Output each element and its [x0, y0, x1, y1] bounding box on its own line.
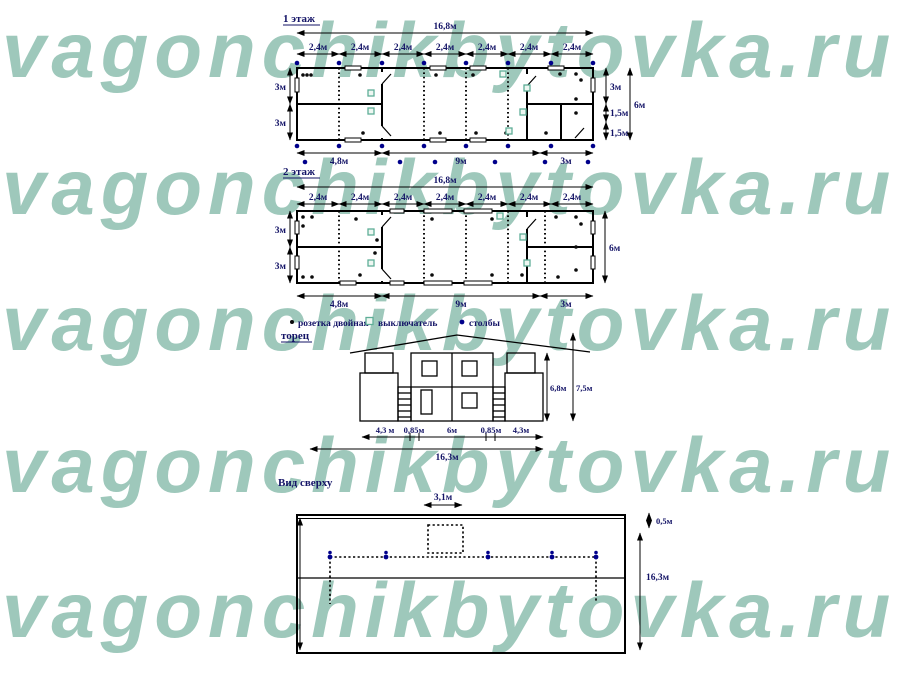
floor2-switches [368, 213, 530, 266]
floor2-title: 2 этаж [283, 166, 315, 178]
legend-posts-label: столбы [469, 318, 500, 329]
dim-label: 2,4м [394, 43, 413, 53]
socket-icon [290, 320, 294, 324]
dim-label: 3м [560, 157, 572, 167]
window [462, 361, 477, 376]
dim-label: 2,4м [563, 43, 582, 53]
floor1-bottom-dims: 4,8м 9м 3м [297, 153, 593, 167]
floor2-plan [295, 209, 595, 285]
window [462, 393, 477, 408]
dim-label: 2,4м [563, 193, 582, 203]
topview-outline [297, 515, 625, 653]
dim-label: 7,5м [576, 383, 593, 393]
dim-label: 9м [455, 300, 467, 310]
dim-label: 2,4м [351, 193, 370, 203]
floor2-bottom-dims: 4,8м 9м 3м [297, 296, 593, 310]
dim-label: 16,8м [433, 176, 457, 186]
dim-label: 2,4м [520, 193, 539, 203]
dim-label: 2,4м [478, 43, 497, 53]
dim-label: 4,3м [513, 425, 530, 435]
dim-label: 6м [447, 425, 457, 435]
right-tower-top [507, 353, 535, 373]
dim-label: 6м [634, 101, 646, 111]
left-stairs [398, 387, 411, 421]
dim-label: 4,8м [330, 300, 349, 310]
floor-plan-drawing: 1 этаж 16,8м 2,4м 2,4м 2,4м 2,4м 2,4м 2,… [0, 0, 900, 675]
floor1-title: 1 этаж [283, 13, 315, 25]
dim-label: 16,3м [646, 573, 670, 583]
dim-label: 3м [610, 83, 622, 93]
right-tower-bottom [505, 373, 543, 421]
floor1-switches [368, 71, 530, 134]
dim-label: 2,4м [309, 193, 328, 203]
dim-label: 3,1м [434, 493, 453, 503]
elevation-title: торец [281, 330, 310, 342]
dim-label: 4,8м [330, 157, 349, 167]
dim-label: 2,4м [478, 193, 497, 203]
dim-label: 0,85м [404, 425, 425, 435]
dim-label: 2,4м [436, 193, 455, 203]
door [421, 390, 432, 414]
post-icon [460, 320, 465, 325]
dim-label: 2,4м [394, 193, 413, 203]
left-tower-top [365, 353, 393, 373]
right-stairs [493, 387, 505, 421]
left-tower-bottom [360, 373, 398, 421]
elevation-bottom-dims: 4,3 м 0,85м 6м 0,85м 4,3м 16,3м [310, 425, 543, 463]
dim-label: 0,85м [481, 425, 502, 435]
dim-label: 3м [560, 300, 572, 310]
window [422, 361, 437, 376]
dim-label: 9м [455, 157, 467, 167]
floor2-segment-dims: 2,4м 2,4м 2,4м 2,4м 2,4м 2,4м 2,4м [297, 193, 593, 204]
dim-label: 3м [275, 226, 287, 236]
elevation-section: торец [281, 330, 593, 463]
topview-section: Вид сверху 3,1м 0,5м 16,3м [278, 477, 673, 653]
dim-label: 16,8м [433, 22, 457, 32]
dim-label: 3м [275, 262, 287, 272]
drawing-page: vagonchikbytovka.ru vagonchikbytovka.ru … [0, 0, 900, 675]
dim-label: 16,3м [435, 453, 459, 463]
dim-label: 6м [609, 244, 621, 254]
dim-label: 0,5м [656, 516, 673, 526]
dim-label: 1,5м [610, 129, 629, 139]
dim-label: 3м [275, 119, 287, 129]
roof-hatch-outline [428, 525, 463, 553]
floor1-section: 1 этаж 16,8м 2,4м 2,4м 2,4м 2,4м 2,4м 2,… [275, 13, 646, 167]
legend: розетка двойная выключатель столбы [290, 318, 500, 330]
roof-line [350, 335, 590, 353]
dim-label: 2,4м [520, 43, 539, 53]
floor2-section: 2 этаж 16,8м 2,4м 2,4м 2,4м 2,4м 2,4м 2,… [275, 166, 621, 310]
topview-posts [328, 551, 599, 560]
legend-switch-label: выключатель [378, 319, 437, 329]
dim-label: 1,5м [610, 109, 629, 119]
switch-icon [366, 318, 373, 325]
dim-label: 3м [275, 83, 287, 93]
dim-label: 4,3 м [376, 425, 395, 435]
topview-title: Вид сверху [278, 477, 333, 489]
floor1-plan [295, 66, 595, 142]
dim-label: 2,4м [436, 43, 455, 53]
legend-socket-label: розетка двойная [298, 318, 369, 329]
dim-label: 2,4м [351, 43, 370, 53]
floor1-segment-dims: 2,4м 2,4м 2,4м 2,4м 2,4м 2,4м 2,4м [297, 43, 593, 54]
dim-label: 2,4м [309, 43, 328, 53]
dim-label: 6,8м [550, 383, 567, 393]
